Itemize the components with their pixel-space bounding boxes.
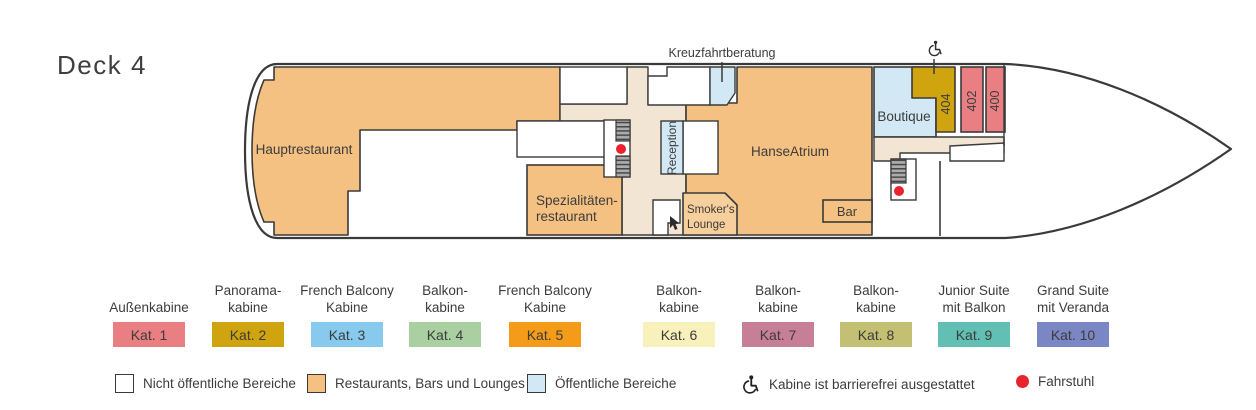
elevator-dot — [894, 186, 904, 196]
category-swatch: Kat. 8 — [840, 322, 912, 347]
label-smokers-2: Lounge — [687, 219, 725, 231]
elevator-dot — [1016, 375, 1029, 388]
stairs-icon — [891, 159, 906, 183]
category-swatch: Kat. 9 — [938, 322, 1010, 347]
deck-plan-page: Deck 4 — [0, 0, 1256, 410]
wheelchair-icon — [929, 41, 940, 56]
label-cabin-400: 400 — [988, 91, 1002, 112]
label-smokers-1: Smoker's — [687, 204, 735, 216]
category-name: Grand Suite mit Veranda — [1007, 279, 1139, 316]
label-boutique: Boutique — [877, 109, 930, 124]
service-room — [560, 67, 627, 104]
category-swatch: Kat. 5 — [509, 322, 581, 347]
label-spezialitaeten-2: restaurant — [536, 209, 597, 224]
service-room — [517, 121, 605, 157]
category-swatch: Kat. 4 — [409, 322, 481, 347]
nonpublic-label: Nicht öffentliche Bereiche — [143, 376, 296, 391]
category-swatch: Kat. 2 — [212, 322, 284, 347]
public-swatch — [527, 374, 546, 393]
legend-category-5: French Balcony Kabine Kat. 5 — [479, 279, 611, 347]
legend-restaurants: Restaurants, Bars und Lounges — [307, 374, 525, 393]
service-room — [683, 121, 718, 174]
label-spezialitaeten-1: Spezialitäten- — [536, 193, 618, 208]
category-swatch: Kat. 6 — [643, 322, 715, 347]
wheelchair-icon — [740, 374, 760, 395]
restaurants-swatch — [307, 374, 326, 393]
label-bar: Bar — [837, 204, 858, 219]
category-swatch: Kat. 1 — [113, 322, 185, 347]
label-hauptrestaurant: Hauptrestaurant — [256, 142, 353, 157]
restaurants-label: Restaurants, Bars und Lounges — [335, 376, 525, 391]
public-label: Öffentliche Bereiche — [555, 376, 676, 391]
category-swatch: Kat. 10 — [1037, 322, 1109, 347]
legend-accessible: Kabine ist barrierefrei ausgestattet — [740, 374, 975, 395]
nonpublic-swatch — [115, 374, 134, 393]
ship-deck-plan: Hauptrestaurant Spezialitäten- restauran… — [0, 0, 1256, 262]
legend-elevator: Fahrstuhl — [1016, 374, 1094, 389]
category-swatch: Kat. 3 — [311, 322, 383, 347]
category-name: French Balcony Kabine — [479, 279, 611, 316]
label-cabin-402: 402 — [965, 91, 979, 112]
label-reception: Reception — [665, 121, 679, 175]
stairs-icon — [616, 156, 630, 177]
label-hanse-atrium: HanseAtrium — [751, 144, 829, 159]
elevator-dot — [616, 144, 626, 154]
elevator-label: Fahrstuhl — [1038, 374, 1094, 389]
label-kreuzfahrtberatung: Kreuzfahrtberatung — [668, 46, 775, 60]
legend-public: Öffentliche Bereiche — [527, 374, 676, 393]
stairs-icon — [616, 120, 630, 141]
category-swatch: Kat. 7 — [742, 322, 814, 347]
legend-category-10: Grand Suite mit Veranda Kat. 10 — [1007, 279, 1139, 347]
label-cabin-404: 404 — [939, 94, 953, 115]
legend-nonpublic: Nicht öffentliche Bereiche — [115, 374, 296, 393]
bow-room — [950, 143, 1004, 161]
accessible-label: Kabine ist barrierefrei ausgestattet — [769, 377, 975, 392]
